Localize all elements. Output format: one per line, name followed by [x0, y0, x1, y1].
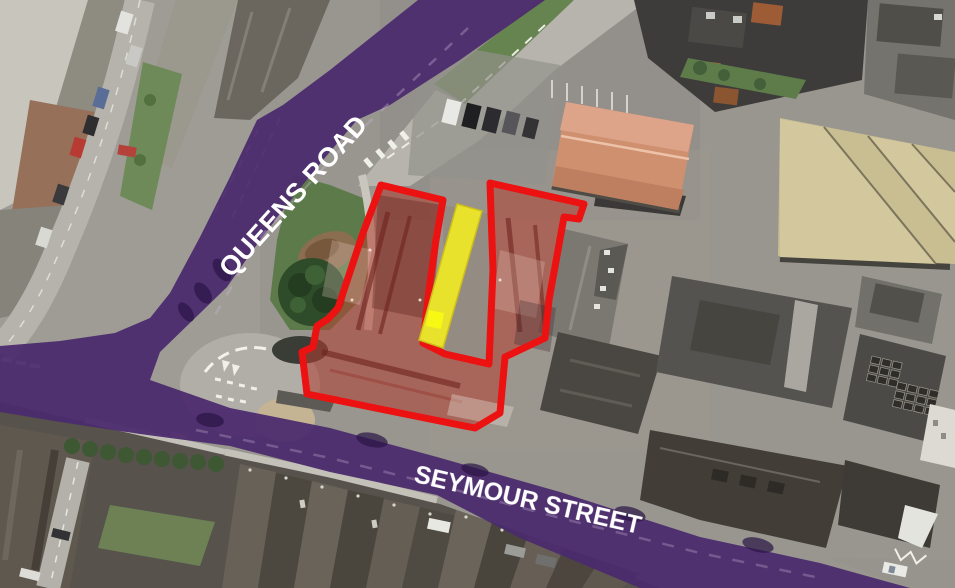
highlighted-lane-bright-patch: [426, 310, 444, 329]
aerial-map: QUEENS ROAD SEYMOUR STREET: [0, 0, 955, 588]
aerial-map-canvas: QUEENS ROAD SEYMOUR STREET: [0, 0, 955, 588]
